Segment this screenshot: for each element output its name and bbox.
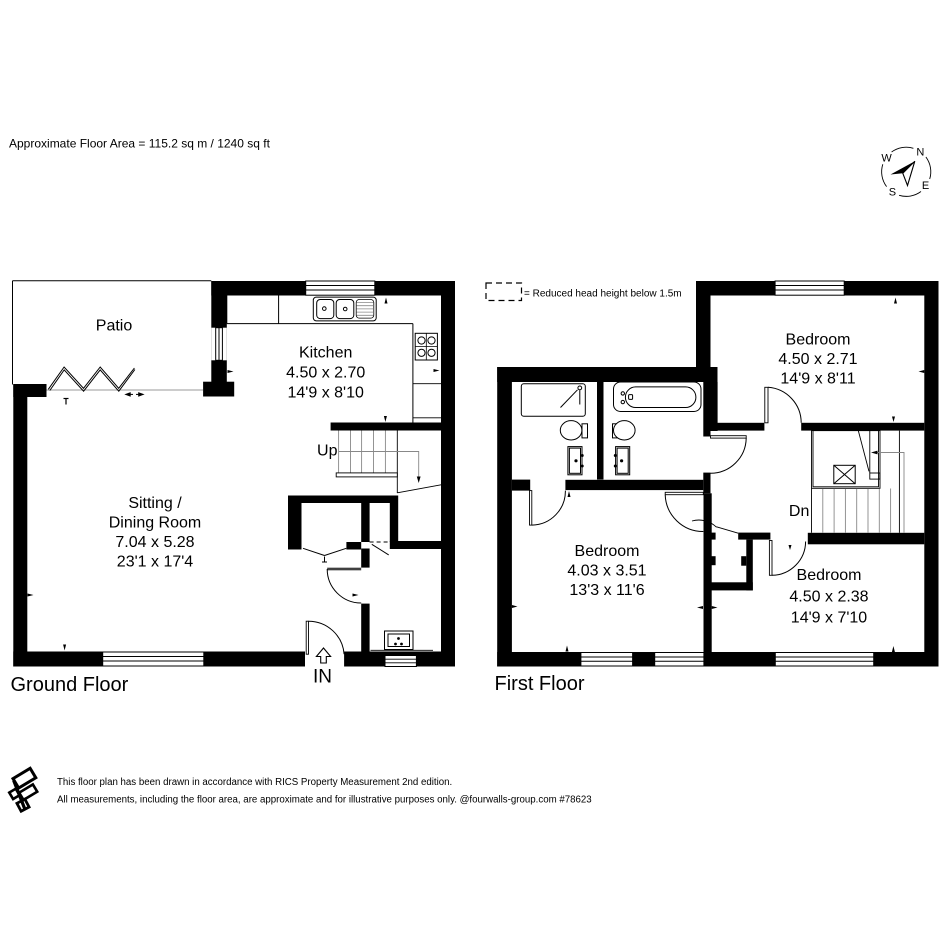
svg-text:S: S: [889, 187, 896, 199]
svg-text:E: E: [922, 180, 929, 192]
svg-text:4.50 x 2.70: 4.50 x 2.70: [286, 365, 365, 382]
svg-text:Dn: Dn: [789, 503, 809, 520]
svg-text:7.04 x 5.28: 7.04 x 5.28: [115, 534, 194, 551]
svg-text:Dining Room: Dining Room: [109, 515, 201, 532]
svg-text:IN: IN: [313, 667, 332, 688]
svg-text:13'3 x 11'6: 13'3 x 11'6: [569, 582, 644, 599]
svg-text:Patio: Patio: [96, 318, 133, 335]
svg-text:All measurements, including th: All measurements, including the floor ar…: [57, 795, 592, 806]
svg-text:First Floor: First Floor: [495, 673, 585, 695]
svg-text:This floor plan has been drawn: This floor plan has been drawn in accord…: [57, 777, 452, 788]
svg-text:14'9 x 7'10: 14'9 x 7'10: [791, 610, 867, 627]
svg-text:Approximate Floor Area = 115.2: Approximate Floor Area = 115.2 sq m / 12…: [9, 137, 271, 151]
svg-text:Up: Up: [317, 443, 338, 460]
svg-text:Sitting /: Sitting /: [128, 495, 182, 512]
svg-text:= Reduced head height below 1.: = Reduced head height below 1.5m: [524, 289, 682, 300]
svg-text:14'9 x 8'10: 14'9 x 8'10: [288, 385, 364, 402]
svg-text:4.50 x 2.71: 4.50 x 2.71: [778, 351, 857, 368]
svg-text:4.50 x 2.38: 4.50 x 2.38: [789, 589, 868, 606]
svg-text:Bedroom: Bedroom: [575, 543, 640, 560]
svg-text:14'9 x 8'11: 14'9 x 8'11: [780, 371, 855, 388]
svg-text:W: W: [881, 153, 892, 165]
svg-text:23'1 x 17'4: 23'1 x 17'4: [117, 554, 193, 571]
svg-text:Ground Floor: Ground Floor: [11, 674, 129, 696]
svg-text:Bedroom: Bedroom: [797, 567, 862, 584]
svg-text:4.03 x 3.51: 4.03 x 3.51: [567, 563, 646, 580]
svg-text:N: N: [916, 147, 924, 159]
svg-text:Bedroom: Bedroom: [786, 332, 851, 349]
svg-text:Kitchen: Kitchen: [299, 345, 352, 362]
